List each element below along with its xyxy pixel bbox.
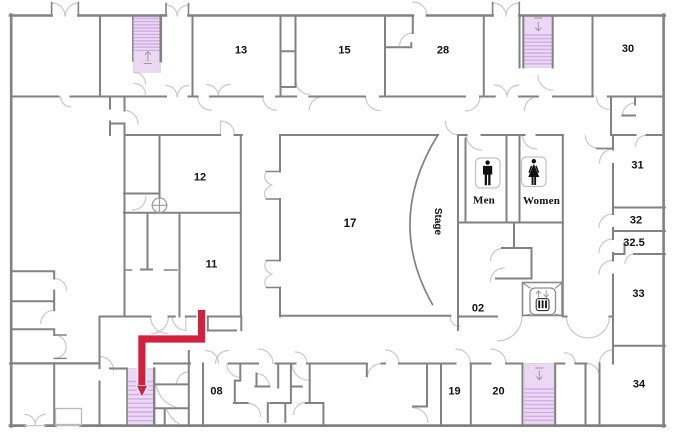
svg-text:19: 19 xyxy=(448,386,460,398)
svg-text:Women: Women xyxy=(523,195,560,207)
svg-text:02: 02 xyxy=(472,303,484,315)
svg-text:32.5: 32.5 xyxy=(623,237,644,249)
svg-text:11: 11 xyxy=(206,259,218,271)
svg-text:Men: Men xyxy=(473,195,495,207)
svg-text:33: 33 xyxy=(632,288,644,300)
svg-text:28: 28 xyxy=(437,45,449,57)
svg-text:15: 15 xyxy=(338,45,350,57)
svg-text:13: 13 xyxy=(235,45,247,57)
svg-text:30: 30 xyxy=(622,43,634,55)
svg-text:31: 31 xyxy=(631,160,643,172)
svg-text:08: 08 xyxy=(210,386,222,398)
svg-text:17: 17 xyxy=(344,218,357,230)
svg-text:34: 34 xyxy=(633,379,646,391)
svg-text:Stage: Stage xyxy=(432,208,443,236)
svg-text:12: 12 xyxy=(194,172,206,184)
svg-text:20: 20 xyxy=(492,386,504,398)
svg-text:32: 32 xyxy=(630,215,642,227)
